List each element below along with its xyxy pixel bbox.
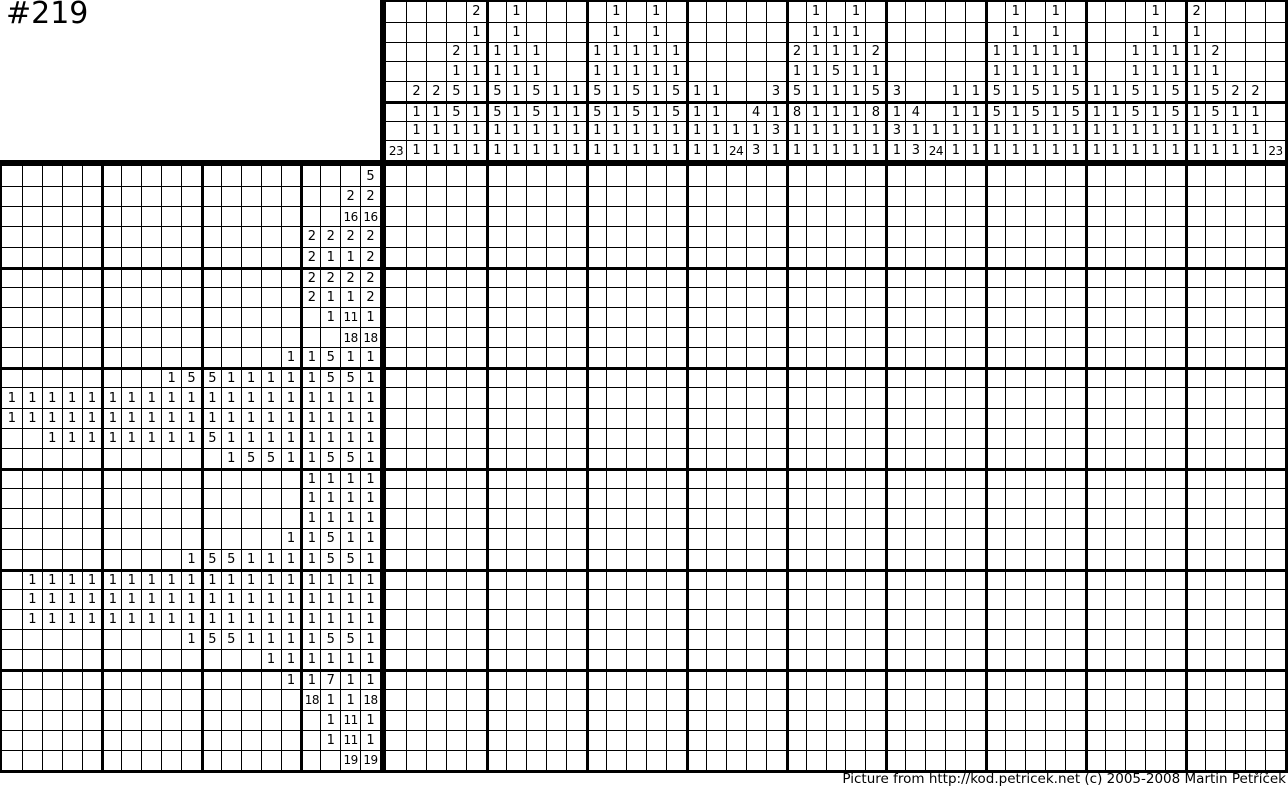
grid-cell[interactable] (506, 629, 526, 649)
grid-cell[interactable] (806, 488, 826, 508)
grid-cell[interactable] (686, 589, 706, 609)
grid-cell[interactable] (1125, 166, 1145, 186)
grid-cell[interactable] (1125, 468, 1145, 488)
grid-cell[interactable] (546, 408, 566, 428)
grid-cell[interactable] (766, 186, 786, 206)
grid-cell[interactable] (486, 267, 506, 287)
grid-cell[interactable] (706, 589, 726, 609)
grid-cell[interactable] (925, 307, 945, 327)
grid-cell[interactable] (446, 226, 466, 246)
grid-cell[interactable] (1225, 247, 1245, 267)
grid-cell[interactable] (806, 689, 826, 709)
grid-cell[interactable] (646, 267, 666, 287)
grid-cell[interactable] (1145, 307, 1165, 327)
grid-cell[interactable] (466, 508, 486, 528)
grid-cell[interactable] (965, 669, 985, 689)
grid-cell[interactable] (386, 166, 406, 186)
grid-cell[interactable] (1265, 428, 1285, 448)
grid-cell[interactable] (885, 629, 905, 649)
grid-cell[interactable] (1025, 287, 1045, 307)
grid-cell[interactable] (466, 166, 486, 186)
grid-cell[interactable] (1025, 589, 1045, 609)
grid-cell[interactable] (1265, 327, 1285, 347)
grid-cell[interactable] (1165, 549, 1185, 569)
grid-cell[interactable] (466, 287, 486, 307)
grid-cell[interactable] (1245, 468, 1265, 488)
grid-cell[interactable] (646, 750, 666, 770)
grid-cell[interactable] (1165, 287, 1185, 307)
grid-cell[interactable] (1265, 387, 1285, 407)
grid-cell[interactable] (446, 569, 466, 589)
grid-cell[interactable] (666, 166, 686, 186)
grid-cell[interactable] (566, 528, 586, 548)
grid-cell[interactable] (845, 528, 865, 548)
grid-cell[interactable] (1265, 629, 1285, 649)
grid-cell[interactable] (406, 649, 426, 669)
grid-cell[interactable] (746, 750, 766, 770)
grid-cell[interactable] (446, 609, 466, 629)
grid-cell[interactable] (1205, 528, 1225, 548)
grid-cell[interactable] (1005, 710, 1025, 730)
grid-cell[interactable] (1025, 448, 1045, 468)
grid-cell[interactable] (885, 247, 905, 267)
grid-cell[interactable] (985, 589, 1005, 609)
grid-cell[interactable] (726, 408, 746, 428)
grid-cell[interactable] (386, 226, 406, 246)
grid-cell[interactable] (925, 468, 945, 488)
grid-cell[interactable] (566, 508, 586, 528)
grid-cell[interactable] (1265, 730, 1285, 750)
grid-cell[interactable] (1065, 669, 1085, 689)
grid-cell[interactable] (446, 428, 466, 448)
grid-cell[interactable] (985, 669, 1005, 689)
grid-cell[interactable] (1225, 166, 1245, 186)
grid-cell[interactable] (965, 468, 985, 488)
grid-cell[interactable] (786, 508, 806, 528)
grid-cell[interactable] (845, 387, 865, 407)
grid-cell[interactable] (406, 730, 426, 750)
grid-cell[interactable] (546, 327, 566, 347)
grid-cell[interactable] (726, 387, 746, 407)
grid-cell[interactable] (965, 347, 985, 367)
grid-cell[interactable] (386, 528, 406, 548)
grid-cell[interactable] (1045, 428, 1065, 448)
grid-cell[interactable] (786, 408, 806, 428)
grid-cell[interactable] (766, 569, 786, 589)
grid-cell[interactable] (466, 689, 486, 709)
grid-cell[interactable] (546, 307, 566, 327)
grid-cell[interactable] (426, 448, 446, 468)
grid-cell[interactable] (985, 528, 1005, 548)
grid-cell[interactable] (566, 710, 586, 730)
grid-cell[interactable] (1105, 166, 1125, 186)
grid-cell[interactable] (586, 206, 606, 226)
grid-cell[interactable] (905, 267, 925, 287)
grid-cell[interactable] (446, 730, 466, 750)
grid-cell[interactable] (945, 307, 965, 327)
grid-cell[interactable] (1045, 166, 1065, 186)
grid-cell[interactable] (865, 206, 885, 226)
grid-cell[interactable] (1125, 609, 1145, 629)
grid-cell[interactable] (1065, 710, 1085, 730)
grid-cell[interactable] (1005, 166, 1025, 186)
grid-cell[interactable] (806, 428, 826, 448)
grid-cell[interactable] (1225, 468, 1245, 488)
grid-cell[interactable] (985, 730, 1005, 750)
grid-cell[interactable] (1145, 730, 1165, 750)
grid-cell[interactable] (1265, 569, 1285, 589)
grid-cell[interactable] (1145, 267, 1165, 287)
grid-cell[interactable] (526, 307, 546, 327)
grid-cell[interactable] (606, 468, 626, 488)
grid-cell[interactable] (885, 206, 905, 226)
grid-cell[interactable] (506, 247, 526, 267)
grid-cell[interactable] (945, 468, 965, 488)
grid-cell[interactable] (646, 730, 666, 750)
grid-cell[interactable] (586, 569, 606, 589)
grid-cell[interactable] (1005, 347, 1025, 367)
grid-cell[interactable] (1185, 327, 1205, 347)
grid-cell[interactable] (386, 347, 406, 367)
grid-cell[interactable] (965, 287, 985, 307)
grid-cell[interactable] (1165, 669, 1185, 689)
grid-cell[interactable] (1005, 488, 1025, 508)
grid-cell[interactable] (1185, 408, 1205, 428)
grid-cell[interactable] (1105, 287, 1125, 307)
grid-cell[interactable] (1145, 488, 1165, 508)
grid-cell[interactable] (945, 629, 965, 649)
grid-cell[interactable] (786, 528, 806, 548)
grid-cell[interactable] (586, 166, 606, 186)
grid-cell[interactable] (806, 307, 826, 327)
grid-cell[interactable] (506, 488, 526, 508)
grid-cell[interactable] (1025, 226, 1045, 246)
grid-cell[interactable] (786, 710, 806, 730)
grid-cell[interactable] (1225, 267, 1245, 287)
grid-cell[interactable] (925, 347, 945, 367)
grid-cell[interactable] (1145, 669, 1165, 689)
grid-cell[interactable] (606, 387, 626, 407)
grid-cell[interactable] (666, 186, 686, 206)
grid-cell[interactable] (486, 206, 506, 226)
grid-cell[interactable] (666, 750, 686, 770)
grid-cell[interactable] (1085, 267, 1105, 287)
grid-cell[interactable] (985, 750, 1005, 770)
grid-cell[interactable] (506, 609, 526, 629)
grid-cell[interactable] (1225, 287, 1245, 307)
grid-cell[interactable] (1105, 488, 1125, 508)
grid-cell[interactable] (885, 710, 905, 730)
grid-cell[interactable] (706, 367, 726, 387)
grid-cell[interactable] (885, 267, 905, 287)
grid-cell[interactable] (446, 528, 466, 548)
grid-cell[interactable] (406, 226, 426, 246)
grid-cell[interactable] (586, 629, 606, 649)
grid-cell[interactable] (746, 549, 766, 569)
grid-cell[interactable] (446, 267, 466, 287)
grid-cell[interactable] (1245, 710, 1265, 730)
grid-cell[interactable] (806, 730, 826, 750)
grid-cell[interactable] (426, 347, 446, 367)
grid-cell[interactable] (646, 166, 666, 186)
grid-cell[interactable] (1085, 428, 1105, 448)
grid-cell[interactable] (1025, 689, 1045, 709)
grid-cell[interactable] (905, 408, 925, 428)
grid-cell[interactable] (1085, 387, 1105, 407)
grid-cell[interactable] (1225, 589, 1245, 609)
grid-cell[interactable] (806, 367, 826, 387)
grid-cell[interactable] (965, 528, 985, 548)
grid-cell[interactable] (766, 488, 786, 508)
grid-cell[interactable] (1045, 609, 1065, 629)
grid-cell[interactable] (746, 186, 766, 206)
grid-cell[interactable] (686, 307, 706, 327)
grid-cell[interactable] (865, 347, 885, 367)
grid-cell[interactable] (1185, 247, 1205, 267)
grid-cell[interactable] (885, 428, 905, 448)
grid-cell[interactable] (566, 730, 586, 750)
grid-cell[interactable] (726, 629, 746, 649)
grid-cell[interactable] (406, 186, 426, 206)
grid-cell[interactable] (446, 206, 466, 226)
grid-cell[interactable] (945, 387, 965, 407)
grid-cell[interactable] (506, 589, 526, 609)
grid-cell[interactable] (885, 367, 905, 387)
grid-cell[interactable] (686, 347, 706, 367)
grid-cell[interactable] (1145, 649, 1165, 669)
grid-cell[interactable] (426, 206, 446, 226)
grid-cell[interactable] (806, 649, 826, 669)
grid-cell[interactable] (826, 508, 846, 528)
grid-cell[interactable] (626, 408, 646, 428)
grid-cell[interactable] (686, 226, 706, 246)
grid-cell[interactable] (566, 367, 586, 387)
grid-cell[interactable] (626, 508, 646, 528)
grid-cell[interactable] (1005, 609, 1025, 629)
grid-cell[interactable] (1025, 387, 1045, 407)
grid-cell[interactable] (386, 387, 406, 407)
grid-cell[interactable] (865, 367, 885, 387)
grid-cell[interactable] (786, 569, 806, 589)
grid-cell[interactable] (1065, 750, 1085, 770)
grid-cell[interactable] (1065, 689, 1085, 709)
grid-cell[interactable] (526, 226, 546, 246)
grid-cell[interactable] (1145, 750, 1165, 770)
grid-cell[interactable] (1265, 347, 1285, 367)
grid-cell[interactable] (786, 206, 806, 226)
grid-cell[interactable] (845, 589, 865, 609)
grid-cell[interactable] (985, 689, 1005, 709)
grid-cell[interactable] (446, 387, 466, 407)
grid-cell[interactable] (786, 428, 806, 448)
grid-cell[interactable] (546, 528, 566, 548)
grid-cell[interactable] (686, 689, 706, 709)
grid-cell[interactable] (586, 347, 606, 367)
grid-cell[interactable] (706, 206, 726, 226)
grid-cell[interactable] (1145, 528, 1165, 548)
grid-cell[interactable] (766, 730, 786, 750)
grid-cell[interactable] (826, 166, 846, 186)
grid-cell[interactable] (1125, 669, 1145, 689)
grid-cell[interactable] (1065, 307, 1085, 327)
grid-cell[interactable] (826, 307, 846, 327)
grid-cell[interactable] (905, 327, 925, 347)
grid-cell[interactable] (1065, 528, 1085, 548)
grid-cell[interactable] (626, 367, 646, 387)
grid-cell[interactable] (945, 730, 965, 750)
grid-cell[interactable] (526, 730, 546, 750)
grid-cell[interactable] (706, 307, 726, 327)
grid-cell[interactable] (1105, 569, 1125, 589)
grid-cell[interactable] (606, 649, 626, 669)
grid-cell[interactable] (865, 307, 885, 327)
grid-cell[interactable] (1025, 669, 1045, 689)
grid-cell[interactable] (1205, 730, 1225, 750)
grid-cell[interactable] (786, 629, 806, 649)
grid-cell[interactable] (646, 569, 666, 589)
grid-cell[interactable] (786, 367, 806, 387)
grid-cell[interactable] (626, 166, 646, 186)
grid-cell[interactable] (506, 267, 526, 287)
grid-cell[interactable] (386, 468, 406, 488)
grid-cell[interactable] (965, 710, 985, 730)
grid-cell[interactable] (766, 710, 786, 730)
grid-cell[interactable] (466, 327, 486, 347)
grid-cell[interactable] (965, 730, 985, 750)
grid-cell[interactable] (985, 569, 1005, 589)
grid-cell[interactable] (1045, 589, 1065, 609)
grid-cell[interactable] (606, 629, 626, 649)
grid-cell[interactable] (746, 267, 766, 287)
grid-cell[interactable] (1025, 347, 1045, 367)
grid-cell[interactable] (1005, 629, 1025, 649)
grid-cell[interactable] (406, 468, 426, 488)
grid-cell[interactable] (1185, 307, 1205, 327)
grid-cell[interactable] (586, 730, 606, 750)
grid-cell[interactable] (586, 226, 606, 246)
grid-cell[interactable] (686, 186, 706, 206)
grid-cell[interactable] (646, 287, 666, 307)
grid-cell[interactable] (446, 689, 466, 709)
grid-cell[interactable] (985, 267, 1005, 287)
grid-cell[interactable] (626, 750, 646, 770)
grid-cell[interactable] (706, 448, 726, 468)
grid-cell[interactable] (885, 226, 905, 246)
grid-cell[interactable] (826, 488, 846, 508)
grid-cell[interactable] (726, 448, 746, 468)
grid-cell[interactable] (1205, 327, 1225, 347)
grid-cell[interactable] (1085, 408, 1105, 428)
grid-cell[interactable] (1085, 569, 1105, 589)
grid-cell[interactable] (985, 327, 1005, 347)
grid-cell[interactable] (446, 307, 466, 327)
grid-cell[interactable] (486, 669, 506, 689)
grid-cell[interactable] (726, 750, 746, 770)
grid-cell[interactable] (1085, 448, 1105, 468)
grid-cell[interactable] (406, 428, 426, 448)
grid-cell[interactable] (1125, 428, 1145, 448)
grid-cell[interactable] (1145, 247, 1165, 267)
grid-cell[interactable] (646, 186, 666, 206)
grid-cell[interactable] (526, 367, 546, 387)
grid-cell[interactable] (566, 589, 586, 609)
grid-cell[interactable] (406, 689, 426, 709)
grid-cell[interactable] (1005, 287, 1025, 307)
grid-cell[interactable] (546, 649, 566, 669)
grid-cell[interactable] (526, 206, 546, 226)
grid-cell[interactable] (446, 488, 466, 508)
grid-cell[interactable] (446, 669, 466, 689)
grid-cell[interactable] (1005, 468, 1025, 488)
grid-cell[interactable] (1105, 367, 1125, 387)
grid-cell[interactable] (945, 549, 965, 569)
grid-cell[interactable] (985, 549, 1005, 569)
grid-cell[interactable] (586, 689, 606, 709)
grid-cell[interactable] (985, 508, 1005, 528)
grid-cell[interactable] (766, 468, 786, 488)
grid-cell[interactable] (686, 730, 706, 750)
grid-cell[interactable] (965, 247, 985, 267)
grid-cell[interactable] (686, 287, 706, 307)
grid-cell[interactable] (726, 528, 746, 548)
grid-cell[interactable] (386, 247, 406, 267)
grid-cell[interactable] (1025, 468, 1045, 488)
grid-cell[interactable] (446, 649, 466, 669)
grid-cell[interactable] (526, 327, 546, 347)
grid-cell[interactable] (1145, 428, 1165, 448)
grid-cell[interactable] (486, 750, 506, 770)
grid-cell[interactable] (406, 166, 426, 186)
grid-cell[interactable] (1245, 649, 1265, 669)
grid-cell[interactable] (426, 710, 446, 730)
grid-cell[interactable] (1085, 750, 1105, 770)
grid-cell[interactable] (865, 569, 885, 589)
grid-cell[interactable] (925, 327, 945, 347)
grid-cell[interactable] (566, 267, 586, 287)
grid-cell[interactable] (965, 488, 985, 508)
grid-cell[interactable] (905, 508, 925, 528)
grid-cell[interactable] (1245, 186, 1265, 206)
grid-cell[interactable] (1185, 186, 1205, 206)
grid-cell[interactable] (666, 287, 686, 307)
grid-cell[interactable] (1085, 287, 1105, 307)
grid-cell[interactable] (1245, 247, 1265, 267)
grid-cell[interactable] (1185, 649, 1205, 669)
grid-cell[interactable] (1205, 267, 1225, 287)
grid-cell[interactable] (965, 307, 985, 327)
grid-cell[interactable] (945, 649, 965, 669)
grid-cell[interactable] (386, 569, 406, 589)
grid-cell[interactable] (526, 408, 546, 428)
grid-cell[interactable] (806, 468, 826, 488)
grid-cell[interactable] (386, 549, 406, 569)
grid-cell[interactable] (1105, 689, 1125, 709)
grid-cell[interactable] (865, 549, 885, 569)
grid-cell[interactable] (1065, 186, 1085, 206)
grid-cell[interactable] (506, 166, 526, 186)
grid-cell[interactable] (726, 549, 746, 569)
grid-cell[interactable] (666, 569, 686, 589)
grid-cell[interactable] (766, 347, 786, 367)
grid-cell[interactable] (806, 206, 826, 226)
grid-cell[interactable] (1245, 488, 1265, 508)
grid-cell[interactable] (1005, 327, 1025, 347)
grid-cell[interactable] (446, 347, 466, 367)
grid-cell[interactable] (746, 710, 766, 730)
grid-cell[interactable] (786, 730, 806, 750)
grid-cell[interactable] (1225, 730, 1245, 750)
grid-cell[interactable] (1025, 267, 1045, 287)
